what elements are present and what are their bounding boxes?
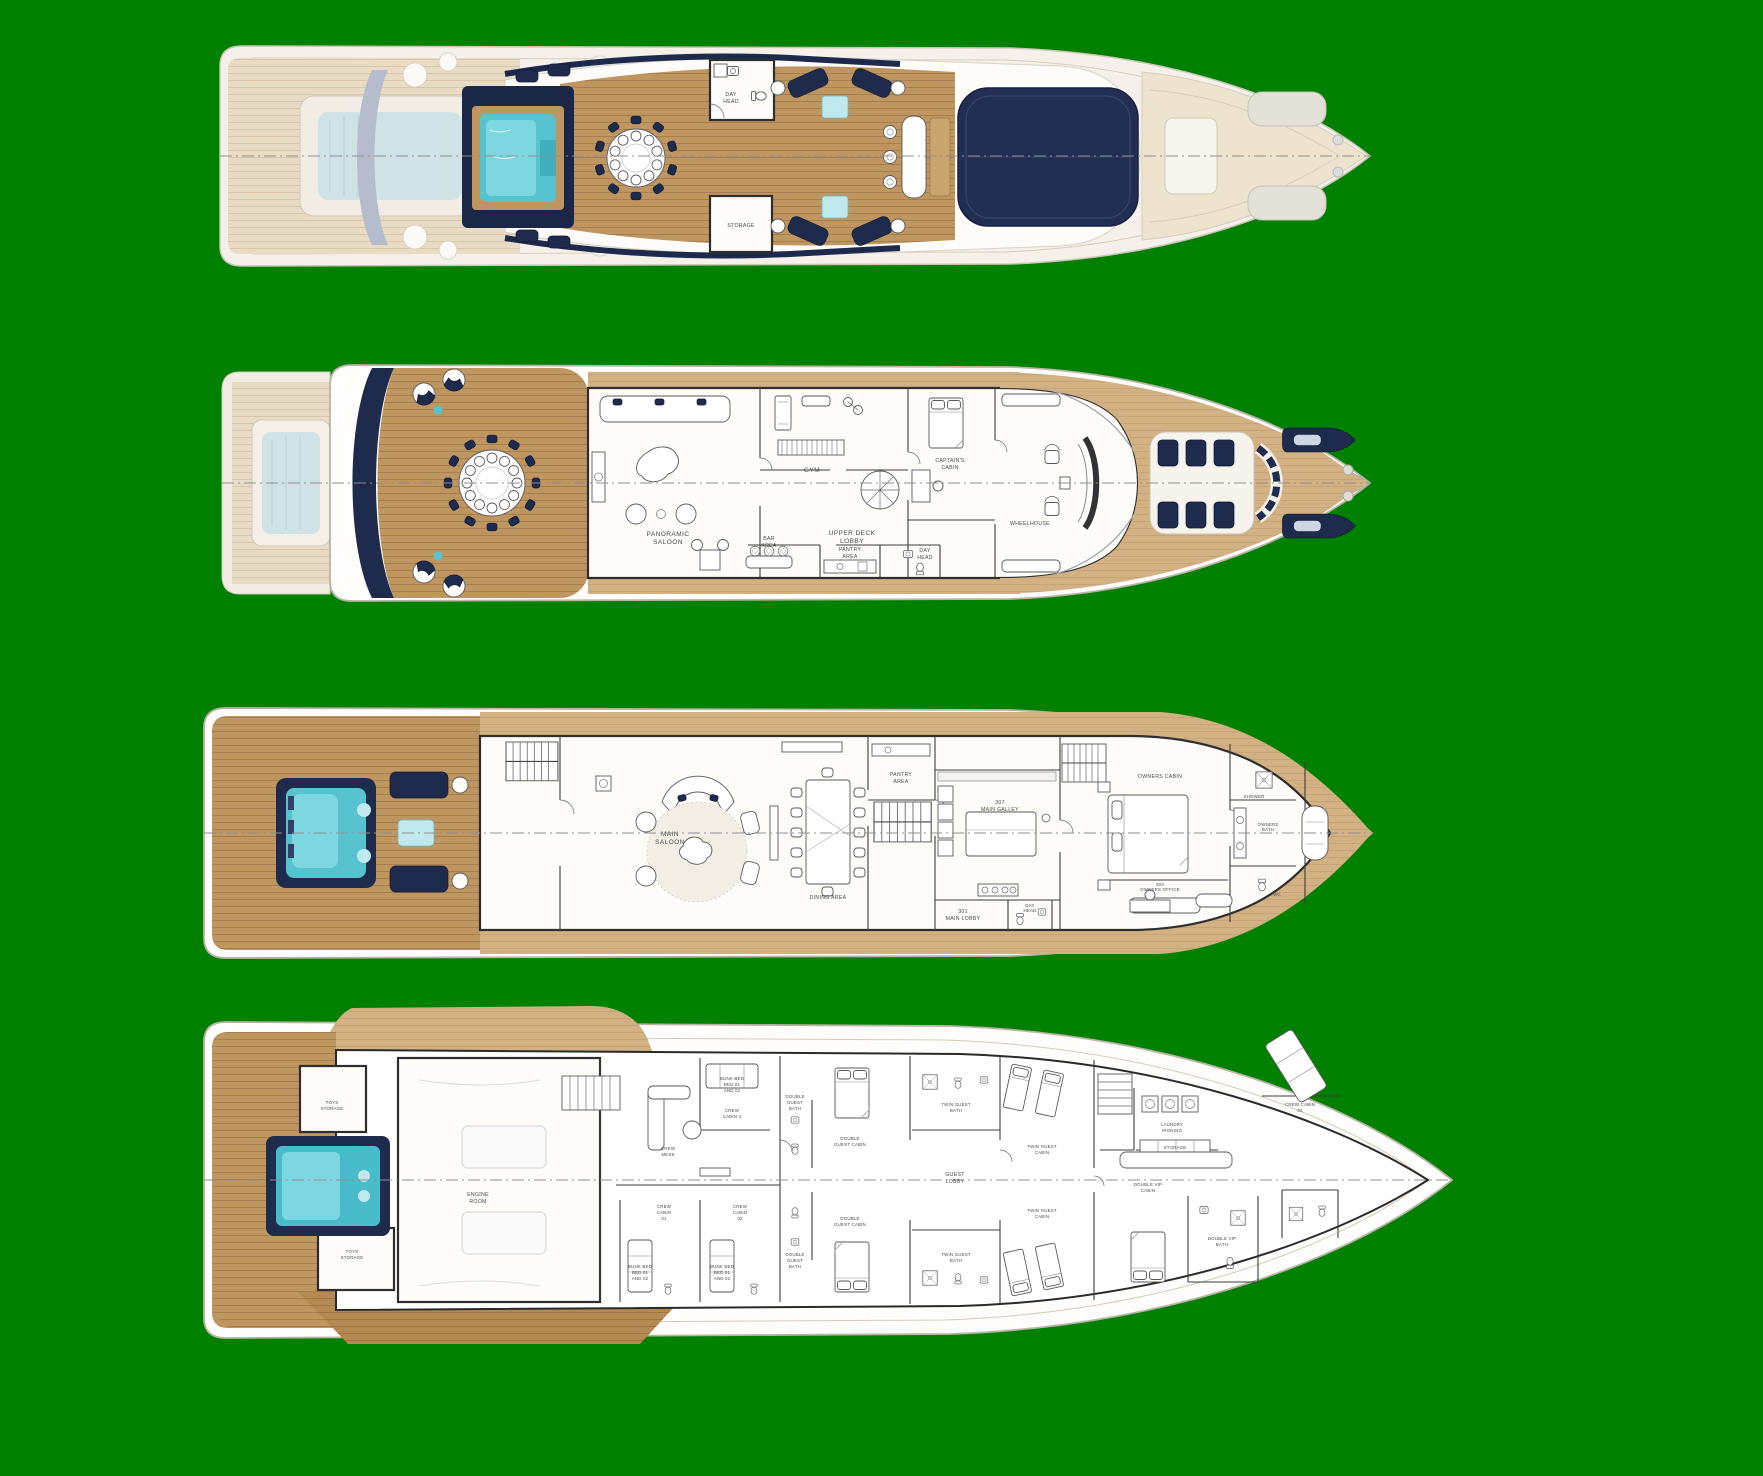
- lower-deck-plan: TOYS STORAGE TOYS STORAGE ENGINE ROOM: [204, 1006, 1452, 1344]
- label-double-guest-cabin-stbd: DOUBLE: [840, 1216, 859, 1221]
- svg-text:BATH: BATH: [789, 1106, 801, 1111]
- label-pantry-area: PANTRY: [839, 547, 862, 553]
- svg-text:AND 02: AND 02: [724, 1088, 741, 1093]
- label-double-guest-cabin-port: DOUBLE: [840, 1136, 859, 1141]
- svg-text:GUEST: GUEST: [787, 1258, 803, 1263]
- svg-text:CABIN: CABIN: [1035, 1150, 1049, 1155]
- owners-stairs: [1062, 744, 1106, 782]
- label-owners-cabin: OWNERS CABIN: [1138, 774, 1182, 780]
- aft-sofa-port: [390, 772, 448, 798]
- label-twin-guest-cabin-stbd: TWIN GUEST: [1027, 1208, 1057, 1213]
- label-storage: STORAGE: [727, 223, 755, 229]
- svg-text:STORAGE: STORAGE: [341, 1255, 364, 1260]
- svg-text:MESS: MESS: [661, 1152, 674, 1157]
- svg-text:ROOM: ROOM: [469, 1199, 486, 1205]
- label-wc: WC: [1273, 892, 1281, 897]
- svg-text:GUEST CABIN: GUEST CABIN: [834, 1142, 866, 1147]
- svg-text:01: 01: [661, 1216, 667, 1221]
- svg-text:SALOON: SALOON: [655, 839, 685, 846]
- svg-text:04: 04: [1297, 1108, 1303, 1113]
- crew-stairs: [562, 1076, 620, 1110]
- aft-sofa-starboard: [390, 866, 448, 892]
- tender-starboard-icon: [1282, 514, 1355, 538]
- deck-plan-drawing: DAY HEAD STORAGE: [0, 0, 1763, 1476]
- svg-text:IRONING: IRONING: [1162, 1128, 1183, 1133]
- label-twin-guest-bath-stbd: TWIN GUEST: [941, 1252, 971, 1257]
- svg-text:AND 02: AND 02: [632, 1276, 649, 1281]
- label-day-head-upper: DAY: [919, 548, 930, 554]
- upper-deck-plan: PANORAMIC SALOON GYM CAPTAIN'S CABIN UPP…: [222, 365, 1370, 601]
- svg-text:CABIN: CABIN: [941, 465, 958, 471]
- sun-deck-plan: DAY HEAD STORAGE: [220, 46, 1370, 266]
- tender-port-icon: [1282, 428, 1355, 452]
- svg-text:CABIN: CABIN: [1035, 1214, 1049, 1219]
- label-double-guest-bath-stbd: DOUBLE: [785, 1252, 804, 1257]
- label-crew-cabin-02: CREW: [733, 1204, 748, 1209]
- label-crew-cabin-04: CREW CABIN: [1285, 1102, 1315, 1107]
- label-crew-cabin-3-bunk: BUNK BED: [720, 1076, 744, 1081]
- svg-text:GUEST: GUEST: [787, 1100, 803, 1105]
- yacht-deck-plans: DAY HEAD STORAGE: [0, 0, 1763, 1476]
- svg-text:SALOON: SALOON: [653, 539, 683, 546]
- label-dining-area: DINING AREA: [810, 895, 847, 901]
- label-twin-guest-bath-port: TWIN GUEST: [941, 1102, 971, 1107]
- label-double-guest-bath-port: DOUBLE: [785, 1094, 804, 1099]
- label-crew-cabin-01: CREW: [657, 1204, 672, 1209]
- svg-text:HEAD: HEAD: [1024, 908, 1037, 913]
- label-main-galley: 307: [995, 800, 1005, 806]
- label-engine-room: ENGINE: [467, 1192, 489, 1198]
- upper-lobby-stairs: [861, 471, 899, 509]
- toys-storage-aft: TOYS STORAGE: [300, 1066, 366, 1132]
- label-pantry-area-main: PANTRY: [890, 772, 913, 778]
- sun-deck-storage: STORAGE: [710, 196, 772, 252]
- label-panoramic-saloon: PANORAMIC: [647, 531, 690, 538]
- ghost-tender: [1248, 92, 1326, 126]
- svg-text:MAIN LOBBY: MAIN LOBBY: [946, 916, 981, 922]
- svg-text:BATH: BATH: [950, 1108, 962, 1113]
- main-stairs: [874, 802, 931, 842]
- svg-text:CABIN: CABIN: [657, 1210, 671, 1215]
- svg-text:HEAD: HEAD: [723, 99, 739, 105]
- svg-text:GUEST CABIN: GUEST CABIN: [834, 1222, 866, 1227]
- label-gym: GYM: [804, 467, 820, 474]
- svg-text:BED 01: BED 01: [714, 1270, 731, 1275]
- svg-text:BATH: BATH: [950, 1258, 962, 1263]
- label-crew-cabin-01-bunk: BUNK BED: [628, 1264, 652, 1269]
- label-bar-area: BAR: [763, 536, 775, 542]
- label-main-lobby: 301: [958, 909, 968, 915]
- label-twin-guest-cabin-port: TWIN GUEST: [1027, 1144, 1057, 1149]
- sun-deck-bar: [884, 116, 951, 198]
- svg-text:CABIN: CABIN: [733, 1210, 747, 1215]
- svg-text:CABIN: CABIN: [1141, 1188, 1155, 1193]
- label-main-saloon: MAIN: [661, 831, 679, 838]
- label-toys-storage-aft: TOYS: [326, 1100, 339, 1105]
- label-storage-shelf: STORAGE: [1164, 1145, 1187, 1150]
- label-double-vip-bath: DOUBLE VIP: [1208, 1236, 1236, 1241]
- forward-stairs: [1098, 1074, 1132, 1114]
- label-crew-cabin-3: CREW: [725, 1108, 740, 1113]
- main-deck-plan: MAIN SALOON DINING AREA PANTRY AREA: [204, 708, 1372, 958]
- toys-storage-fwd: TOYS STORAGE: [318, 1228, 394, 1290]
- label-laundry: LAUNDRY: [1161, 1122, 1183, 1127]
- sun-deck-day-head: DAY HEAD: [710, 60, 774, 120]
- svg-text:STORAGE: STORAGE: [321, 1106, 344, 1111]
- label-crew-cabin-02-bunk: BUNK BED: [710, 1264, 734, 1269]
- svg-text:BATH: BATH: [1262, 827, 1274, 832]
- svg-text:BATH: BATH: [1216, 1242, 1228, 1247]
- svg-text:BED 01: BED 01: [632, 1270, 649, 1275]
- label-wheelhouse: WHEELHOUSE: [1010, 521, 1050, 527]
- main-aft-stairs: [506, 742, 558, 781]
- label-day-head: DAY: [725, 92, 736, 98]
- label-captains-cabin: CAPTAIN'S: [935, 458, 964, 464]
- label-upper-deck-lobby: UPPER DECK: [829, 530, 876, 537]
- svg-text:BATH: BATH: [789, 1264, 801, 1269]
- svg-text:LOBBY: LOBBY: [840, 538, 864, 545]
- svg-text:HEAD: HEAD: [917, 555, 933, 561]
- label-shower: SHOWER: [1244, 794, 1265, 799]
- svg-text:AND 02: AND 02: [714, 1276, 731, 1281]
- svg-text:02: 02: [737, 1216, 743, 1221]
- svg-text:AREA: AREA: [893, 779, 909, 785]
- svg-text:BED 01: BED 01: [724, 1082, 741, 1087]
- ghost-tender: [1248, 186, 1326, 220]
- label-crew-mess: CREW: [661, 1146, 676, 1151]
- sun-deck-pool: [462, 86, 574, 228]
- svg-text:AREA: AREA: [761, 543, 777, 549]
- label-double-vip-cabin: DOUBLE VIP: [1134, 1182, 1162, 1187]
- sun-deck-hardtop: [958, 88, 1138, 226]
- label-toys-storage-fwd: TOYS: [346, 1249, 359, 1254]
- svg-text:CABIN 3: CABIN 3: [723, 1114, 742, 1119]
- ghost-umbrella: [403, 63, 427, 87]
- label-guest-lobby: GUEST: [945, 1172, 965, 1178]
- pool-glass-bottom: [266, 1136, 390, 1236]
- svg-text:AREA: AREA: [842, 554, 858, 560]
- svg-text:MAIN GALLEY: MAIN GALLEY: [981, 807, 1019, 813]
- svg-text:OWNERS OFFICE: OWNERS OFFICE: [1140, 887, 1180, 892]
